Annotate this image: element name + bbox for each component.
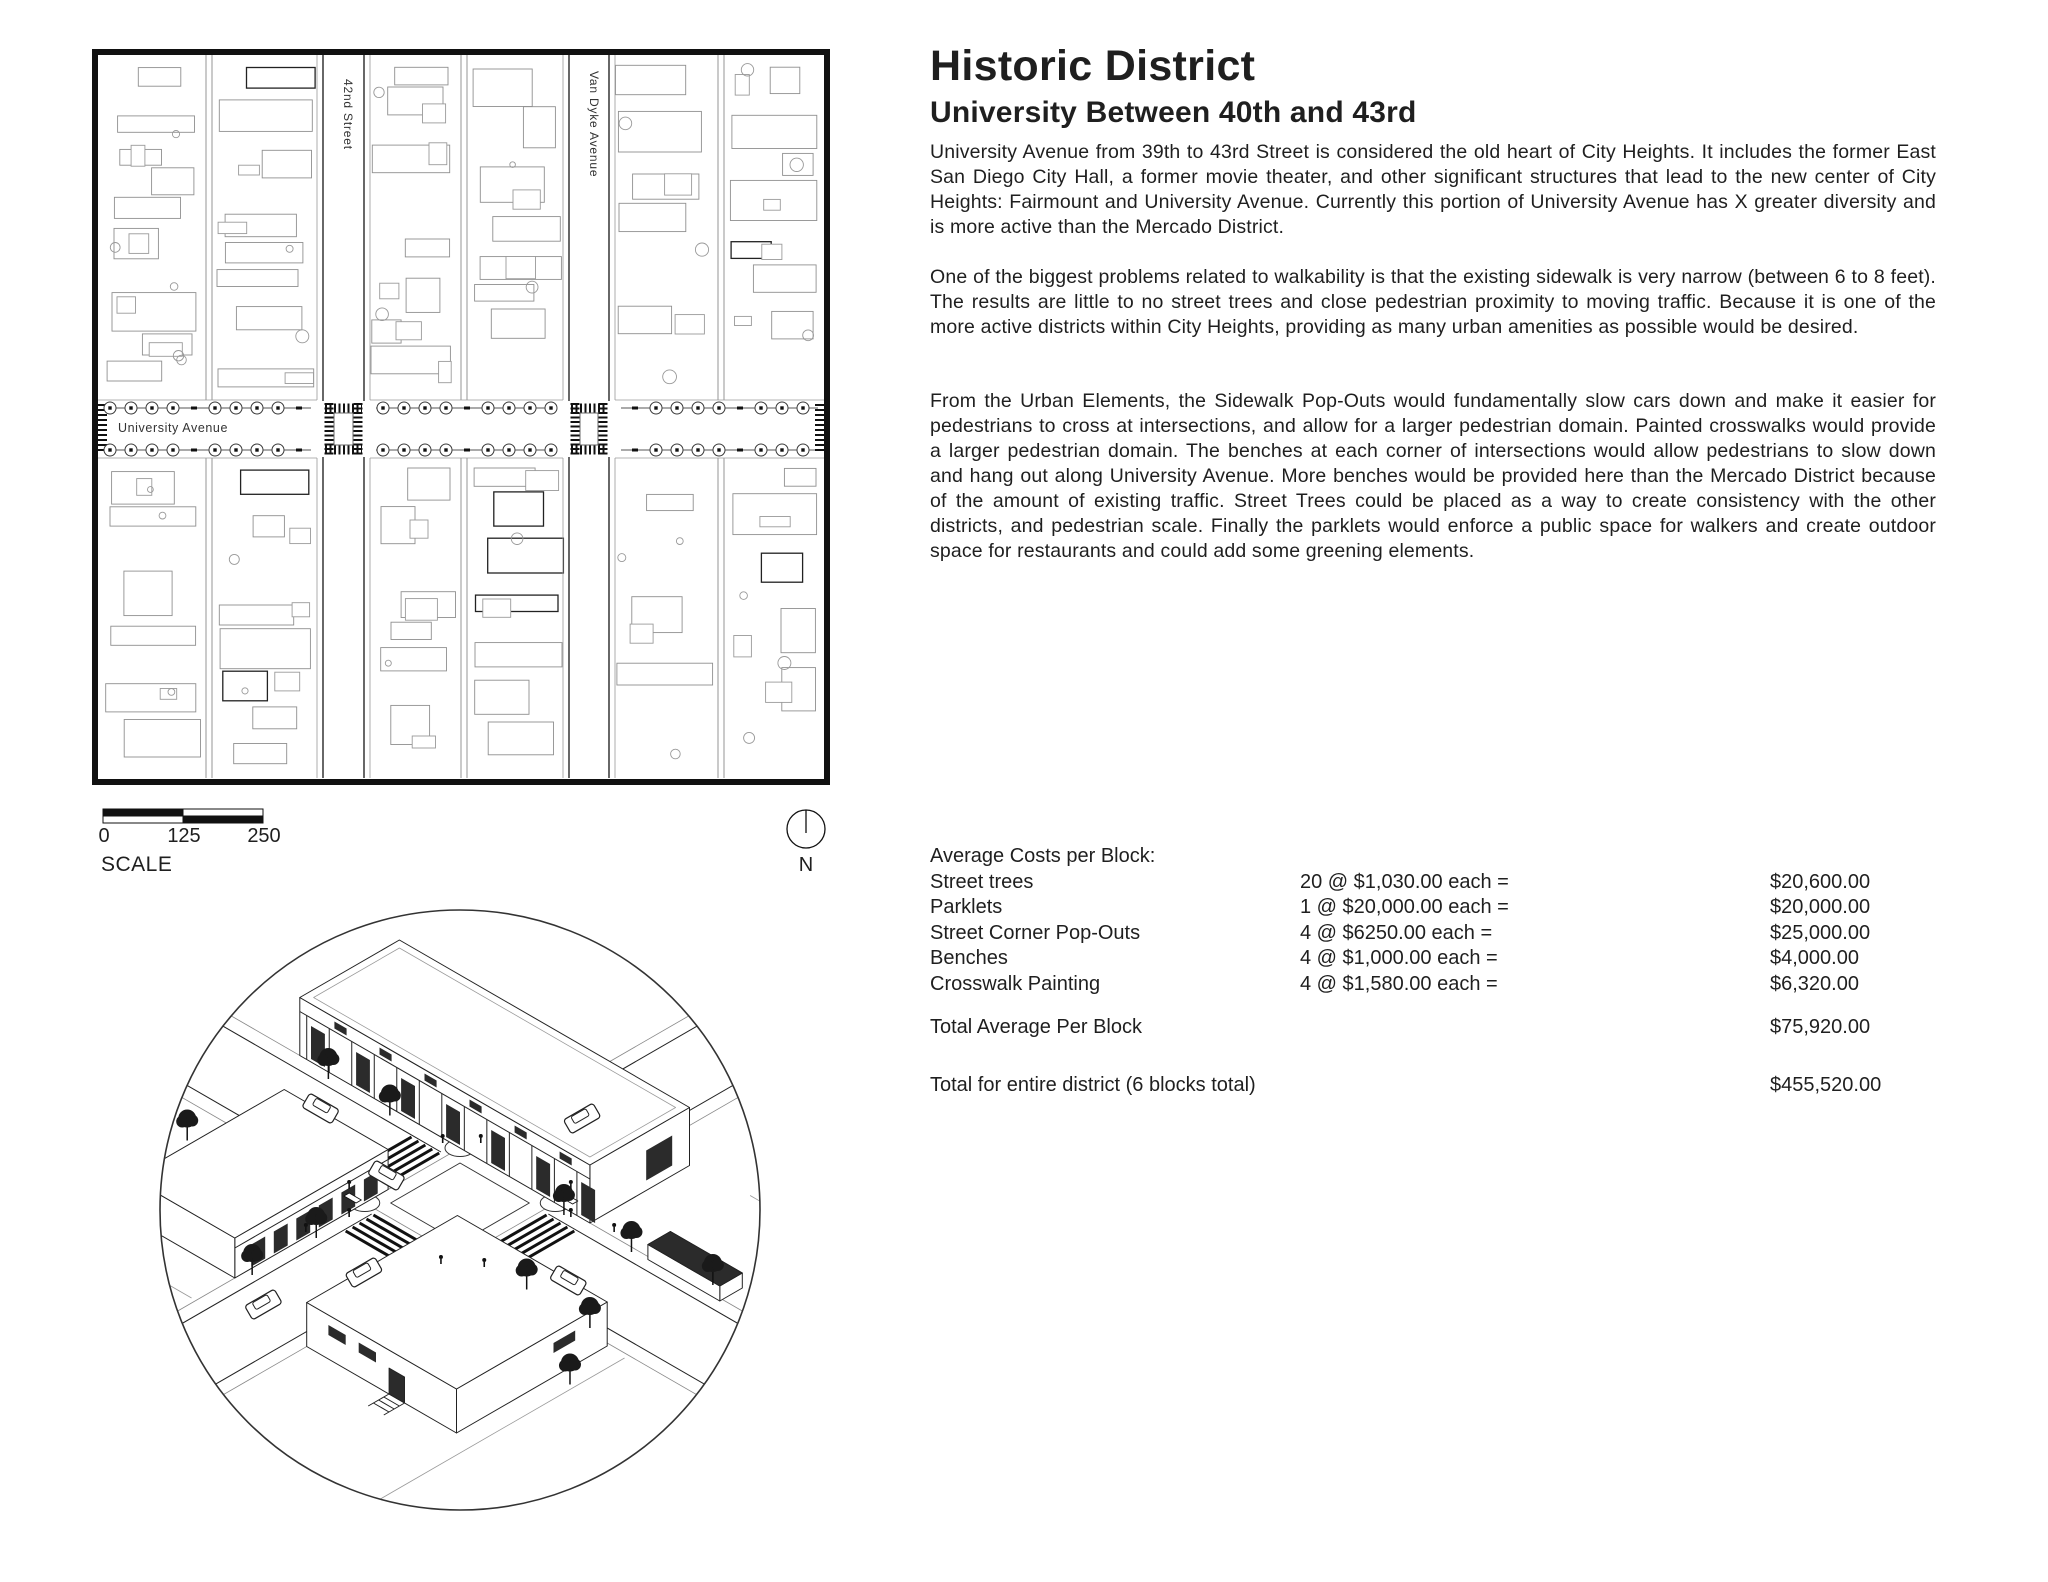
page-title: Historic District bbox=[930, 42, 1255, 91]
cost-qty-text: 4 @ $6250.00 each = bbox=[1300, 922, 1492, 945]
cost-qty-text: 1 @ $20,000.00 each = bbox=[1300, 896, 1509, 919]
cost-item-label: Parklets bbox=[930, 896, 1002, 919]
cost-qty-text: 4 @ $1,000.00 each = bbox=[1300, 947, 1498, 970]
map-streets bbox=[98, 55, 824, 778]
total-district-row: Total for entire district (6 blocks tota… bbox=[930, 1074, 1942, 1100]
page-subtitle: University Between 40th and 43rd bbox=[930, 96, 1417, 130]
cost-row: Crosswalk Painting4 @ $1,580.00 each =$6… bbox=[930, 973, 1942, 998]
scale-seg-3 bbox=[103, 816, 183, 823]
cost-amount: $6,320.00 bbox=[1770, 973, 1859, 996]
street-label-42nd: 42nd Street bbox=[341, 79, 355, 150]
paragraph-intro: University Avenue from 39th to 43rd Stre… bbox=[930, 140, 1936, 240]
cost-item-label: Street Corner Pop-Outs bbox=[930, 922, 1140, 945]
scale-tick-0: 0 bbox=[98, 825, 109, 848]
paragraph-walkability: One of the biggest problems related to w… bbox=[930, 265, 1936, 340]
costs-heading: Average Costs per Block: bbox=[930, 845, 1942, 871]
paragraph-elements: From the Urban Elements, the Sidewalk Po… bbox=[930, 389, 1936, 564]
street-label-university: University Avenue bbox=[118, 421, 228, 435]
north-label: N bbox=[780, 854, 832, 877]
north-arrow-icon bbox=[780, 806, 832, 852]
cost-qty-text: 4 @ $1,580.00 each = bbox=[1300, 973, 1498, 996]
scale-seg-2 bbox=[183, 809, 263, 816]
scale-seg-4 bbox=[183, 816, 263, 823]
costs-table: Average Costs per Block: Street trees20 … bbox=[930, 845, 1942, 998]
scale-seg-1 bbox=[103, 809, 183, 816]
cost-amount: $20,000.00 bbox=[1770, 896, 1870, 919]
street-label-vandyke: Van Dyke Avenue bbox=[587, 71, 601, 177]
total-district-amount: $455,520.00 bbox=[1770, 1074, 1881, 1097]
cost-row: Parklets1 @ $20,000.00 each =$20,000.00 bbox=[930, 896, 1942, 921]
scale-tick-125: 125 bbox=[167, 825, 200, 848]
cost-item-label: Crosswalk Painting bbox=[930, 973, 1100, 996]
cost-amount: $4,000.00 bbox=[1770, 947, 1859, 970]
illustration-content bbox=[155, 905, 765, 1515]
total-per-block-row: Total Average Per Block $75,920.00 bbox=[930, 1016, 1942, 1042]
cost-row: Benches4 @ $1,000.00 each =$4,000.00 bbox=[930, 947, 1942, 972]
total-per-block-label: Total Average Per Block bbox=[930, 1016, 1142, 1039]
cost-amount: $25,000.00 bbox=[1770, 922, 1870, 945]
cost-row: Street Corner Pop-Outs4 @ $6250.00 each … bbox=[930, 922, 1942, 947]
cost-qty-text: 20 @ $1,030.00 each = bbox=[1300, 871, 1509, 894]
scale-bar bbox=[102, 808, 268, 826]
scale-tick-250: 250 bbox=[247, 825, 280, 848]
cost-row: Street trees20 @ $1,030.00 each =$20,600… bbox=[930, 871, 1942, 896]
cost-amount: $20,600.00 bbox=[1770, 871, 1870, 894]
cost-item-label: Street trees bbox=[930, 871, 1033, 894]
scale-caption: SCALE bbox=[101, 853, 172, 877]
intersection-illustration bbox=[155, 905, 765, 1515]
district-map: University Avenue 42nd Street Van Dyke A… bbox=[92, 49, 830, 785]
total-per-block-amount: $75,920.00 bbox=[1770, 1016, 1870, 1039]
cost-item-label: Benches bbox=[930, 947, 1008, 970]
costs-rows: Street trees20 @ $1,030.00 each =$20,600… bbox=[930, 871, 1942, 998]
page: { "header": { "title": "Historic Distric… bbox=[0, 0, 2048, 1582]
total-district-label: Total for entire district (6 blocks tota… bbox=[930, 1074, 1256, 1097]
